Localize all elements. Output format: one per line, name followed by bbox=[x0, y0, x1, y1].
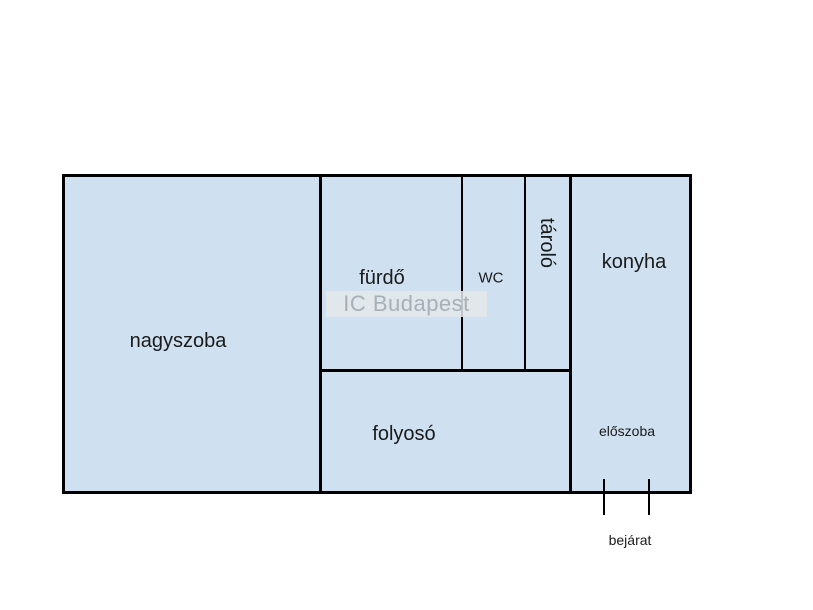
entrance-door-mark-left bbox=[603, 479, 605, 515]
wall-wc-tarolo-divider bbox=[524, 177, 526, 369]
room-label-konyha: konyha bbox=[602, 252, 667, 272]
watermark-text: IC Budapest bbox=[343, 293, 470, 315]
room-label-folyoso: folyosó bbox=[372, 424, 435, 444]
room-label-nagyszoba: nagyszoba bbox=[130, 331, 227, 351]
apartment-outline: nagyszoba fürdő WC tároló konyha folyosó… bbox=[62, 174, 692, 494]
floorplan-canvas: nagyszoba fürdő WC tároló konyha folyosó… bbox=[0, 0, 813, 610]
wall-folyoso-divider bbox=[319, 369, 572, 372]
wall-konyha-divider bbox=[569, 177, 572, 491]
room-label-furdo: fürdő bbox=[359, 268, 405, 288]
room-label-eloszoba: előszoba bbox=[599, 424, 655, 438]
watermark: IC Budapest bbox=[326, 291, 487, 317]
entrance-door-mark-right bbox=[648, 479, 650, 515]
wall-furdo-wc-divider bbox=[461, 177, 463, 369]
entrance-label: bejárat bbox=[609, 533, 652, 547]
room-label-wc: WC bbox=[479, 271, 504, 286]
wall-nagyszoba-divider bbox=[319, 177, 322, 491]
room-label-tarolo: tároló bbox=[537, 218, 557, 268]
